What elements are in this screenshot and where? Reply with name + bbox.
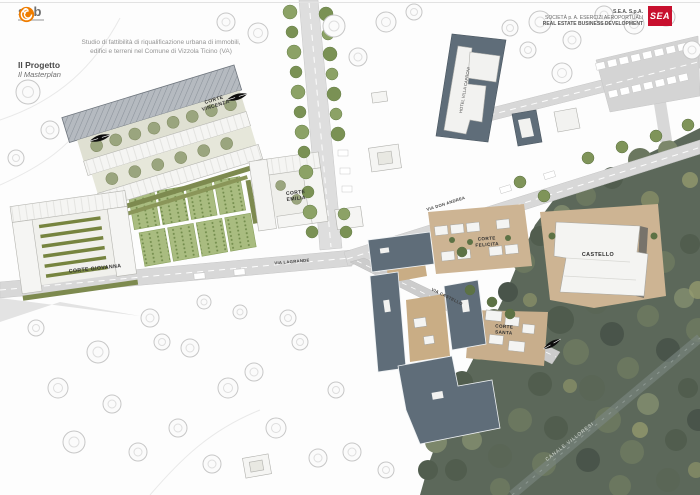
subtitle-line1: Studio di fattibilità di riqualificazion… [68,39,254,48]
section-title-main: Il Progetto [18,60,61,70]
sea-logo: SEA [648,6,672,26]
ground-complex-court1 [406,294,450,362]
sab-logo-icon [18,6,35,23]
sea-division: REAL ESTATE BUSINESS DEVELOPMENT [543,21,643,27]
label-castello: CASTELLO [582,252,614,258]
section-title: Il Progetto Il Masterplan [18,60,61,79]
masterplan-drawing: CORTE VINCENZA CORTE GIOVANNA CORTE EMIL… [0,0,700,495]
section-title-sub: Il Masterplan [18,70,61,79]
masterplan-board: CORTE VINCENZA CORTE GIOVANNA CORTE EMIL… [0,0,700,495]
hotel-wing [468,52,500,82]
sab-logo: sab [18,6,44,21]
sea-block: S.E.A. S.p.A. SOCIETÀ p. A. ESERCIZI AER… [543,6,672,27]
sea-text-lines: S.E.A. S.p.A. SOCIETÀ p. A. ESERCIZI AER… [543,6,643,27]
top-divider [0,2,700,3]
study-subtitle: Studio di fattibilità di riqualificazion… [68,39,254,56]
subtitle-line2: edifici e terreni nel Comune di Vizzola … [68,48,254,57]
annex-white [554,108,580,132]
